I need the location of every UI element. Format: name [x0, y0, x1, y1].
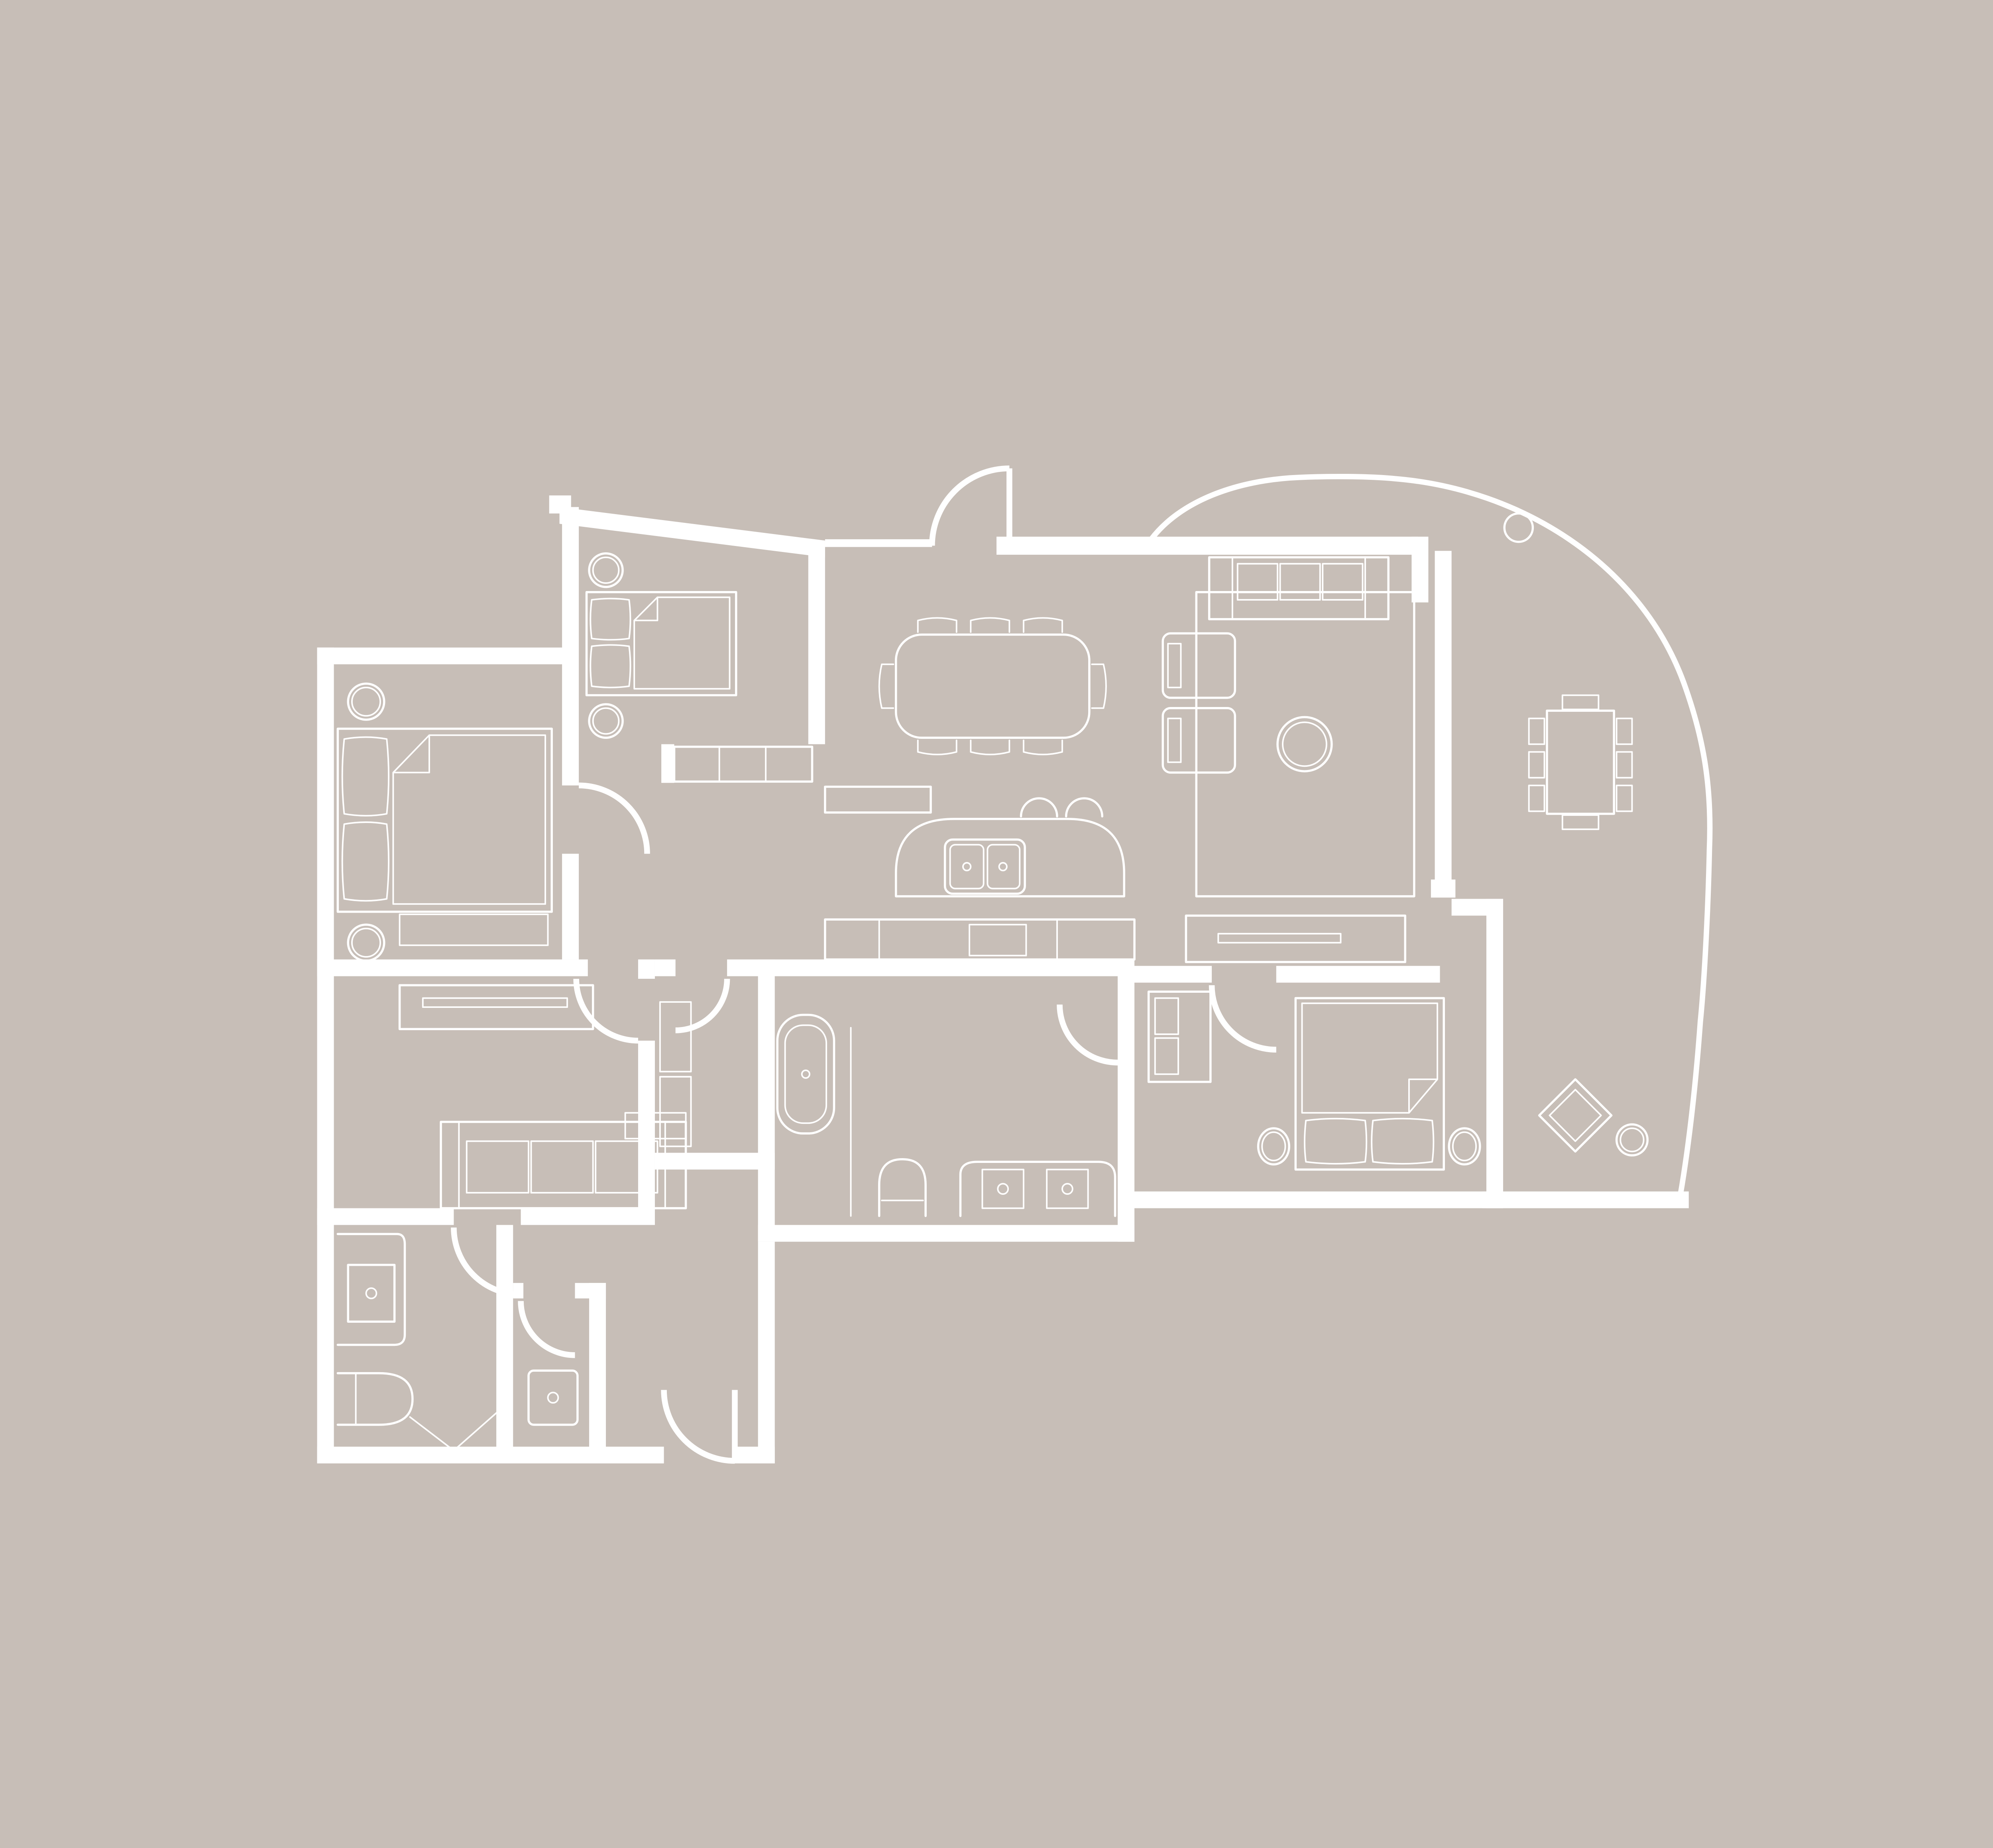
wall-laundry-right	[589, 1283, 606, 1463]
armchair-back	[1168, 719, 1181, 762]
bed-frame	[587, 592, 736, 695]
round-coffee-table	[1278, 717, 1332, 771]
wall-media-right-b	[638, 1041, 655, 1208]
sink-drain	[366, 1288, 376, 1298]
armchair-pair	[1163, 633, 1235, 772]
br2-closet	[674, 747, 812, 782]
round-nightstand-inner	[593, 557, 619, 583]
sink-drain	[999, 863, 1006, 870]
closet-door-arc	[676, 979, 727, 1030]
outdoor-chair	[1529, 752, 1545, 778]
bedroom-bench	[400, 914, 548, 945]
wall-master-bottom	[1118, 1192, 1689, 1208]
dining-chair	[1024, 618, 1062, 632]
master-closet	[1149, 992, 1211, 1082]
outdoor-chair	[1529, 786, 1545, 811]
wall-left-outer	[317, 648, 334, 1463]
duvet-fold	[634, 597, 729, 689]
terrace-boundary-line	[1151, 477, 1710, 1206]
duvet-fold	[393, 735, 545, 904]
outdoor-chair	[1529, 719, 1545, 744]
washer	[529, 1371, 578, 1425]
pillow	[342, 822, 389, 901]
wall-diagonal	[560, 507, 825, 557]
wall-bottom-stub	[735, 1447, 774, 1463]
pillow	[1372, 1119, 1433, 1164]
outdoor-chair	[1563, 695, 1599, 709]
washer-dot	[548, 1392, 558, 1403]
round-nightstand	[589, 554, 623, 587]
dining-chair	[971, 740, 1009, 755]
wall-br1-bottom	[317, 959, 588, 976]
dining-area	[879, 618, 1106, 754]
armchair-back	[1168, 644, 1181, 687]
living-room	[1163, 557, 1414, 962]
media-door-arc	[576, 979, 638, 1041]
wall-corridor-right	[758, 1242, 775, 1463]
wardrobe-cell	[660, 1002, 691, 1072]
wall-top-living	[996, 537, 1418, 555]
wall-master-bottom-stub	[1482, 1192, 1503, 1208]
wall-bath2-bottom	[758, 1225, 1134, 1242]
bathtub-drain	[802, 1070, 810, 1078]
sofa-cushion	[1323, 564, 1362, 600]
floor-plan-drawing	[0, 0, 1993, 1848]
area-rug	[1196, 592, 1414, 896]
pillow	[590, 599, 630, 640]
dining-chair	[918, 740, 957, 755]
bar-stool	[1066, 798, 1103, 816]
sofa-living	[1209, 557, 1389, 619]
wall-bath1-top-a	[317, 1208, 454, 1225]
wall-master-right	[1486, 899, 1503, 1208]
round-nightstand	[589, 704, 623, 738]
wall-closet-top-b	[727, 959, 1134, 976]
dining-chair-end	[879, 664, 894, 708]
wall-top-thin	[825, 539, 932, 547]
pillow	[1305, 1119, 1366, 1164]
round-nightstand	[348, 683, 384, 720]
wall-top-left-block	[317, 648, 576, 664]
wall-br1-right-upper	[562, 507, 579, 786]
sofa-cushion	[467, 1141, 529, 1192]
vanity-sink	[1047, 1170, 1088, 1208]
round-coffee-table-inner	[1283, 722, 1327, 766]
toilet	[879, 1159, 926, 1216]
tv-console-slot	[1218, 934, 1340, 943]
planter-circle	[1504, 513, 1533, 542]
wall-bottom-left	[317, 1447, 664, 1463]
bedroom-1-left	[338, 683, 552, 960]
outdoor-chair	[1563, 815, 1599, 829]
wall-master-top-a	[1118, 966, 1212, 983]
main-bathroom	[777, 1015, 1115, 1216]
round-nightstand-inner	[352, 929, 380, 957]
master-bedroom	[1149, 992, 1480, 1169]
sofa-chaise	[625, 1113, 686, 1139]
outdoor-chair	[1617, 719, 1632, 744]
bathroom-1	[338, 1234, 497, 1450]
wall-media-right-a	[638, 959, 655, 979]
outdoor-side-table-inner	[1620, 1128, 1643, 1151]
bathtub-inner	[785, 1025, 826, 1123]
bar-stool	[1021, 798, 1057, 816]
terrace	[1151, 477, 1710, 1206]
sofa-outline	[1209, 557, 1389, 619]
vanity-sink	[348, 1265, 394, 1322]
wall-br1-right-lower	[562, 854, 579, 959]
wall-bath2-left	[758, 959, 775, 1241]
closet-cell	[1155, 1038, 1178, 1074]
wall-closet-top-a	[655, 959, 676, 976]
round-nightstand-inner	[1453, 1132, 1476, 1161]
sofa-cushion	[531, 1141, 593, 1192]
cooktop	[969, 925, 1026, 956]
round-nightstand-inner	[1262, 1132, 1285, 1161]
tv-console-slot	[423, 998, 567, 1007]
laundry-door-arc	[521, 1301, 575, 1355]
bed-frame	[338, 729, 552, 912]
sink-drain	[1062, 1184, 1073, 1194]
sofa-cushion	[1238, 564, 1278, 600]
round-nightstand-inner	[593, 708, 619, 734]
wall-bath1-top-b	[521, 1208, 655, 1225]
wall-bath1-right	[496, 1225, 513, 1463]
outdoor-chair	[1617, 786, 1632, 811]
laundry-wc	[529, 1371, 578, 1425]
kitchen-island	[896, 819, 1124, 896]
duvet-fold	[1302, 1003, 1437, 1113]
island-sink-bowl	[950, 845, 984, 889]
pillow	[342, 737, 389, 816]
entry-door-arc	[932, 468, 1009, 546]
hall-console	[825, 787, 931, 813]
shower-screen	[410, 1412, 497, 1451]
island-sink-outer	[945, 840, 1025, 894]
dining-chair	[1024, 740, 1062, 755]
outdoor-chair	[1617, 752, 1632, 778]
outdoor-table	[1547, 711, 1614, 814]
round-nightstand	[348, 925, 384, 961]
wall-terrace-stub	[1431, 880, 1455, 897]
dining-chair	[971, 618, 1009, 632]
closet-cell	[1155, 998, 1178, 1034]
floor-plan-stage	[0, 0, 1993, 1848]
vanity-sink	[982, 1170, 1023, 1208]
dining-chair-end	[1092, 664, 1106, 708]
wall-terrace-window	[1435, 551, 1452, 882]
exit-door-arc	[664, 1390, 735, 1461]
outdoor-dining-set	[1529, 695, 1632, 829]
wall-br2-closet-stub	[661, 744, 674, 783]
bedroom1-door-arc	[579, 786, 647, 854]
island-sink-bowl	[987, 845, 1020, 889]
sink-drain	[998, 1184, 1008, 1194]
dining-chair	[918, 618, 957, 632]
outdoor-lounge	[1539, 1079, 1648, 1155]
toilet	[338, 1373, 413, 1425]
pillow	[590, 645, 630, 687]
sink-drain	[963, 863, 971, 870]
sofa-cushion	[1280, 564, 1320, 600]
wall-master-top-b	[1276, 966, 1440, 983]
bathroom2-door-arc	[1059, 1005, 1118, 1063]
kitchen-counter	[825, 919, 1134, 959]
bed-frame	[1295, 998, 1444, 1169]
wall-br2-right	[808, 542, 825, 744]
kitchen	[825, 798, 1134, 959]
master-door-arc	[1212, 985, 1276, 1050]
wall-closet-bottom	[655, 1153, 775, 1170]
dining-table	[896, 634, 1089, 738]
round-nightstand-inner	[352, 687, 380, 716]
